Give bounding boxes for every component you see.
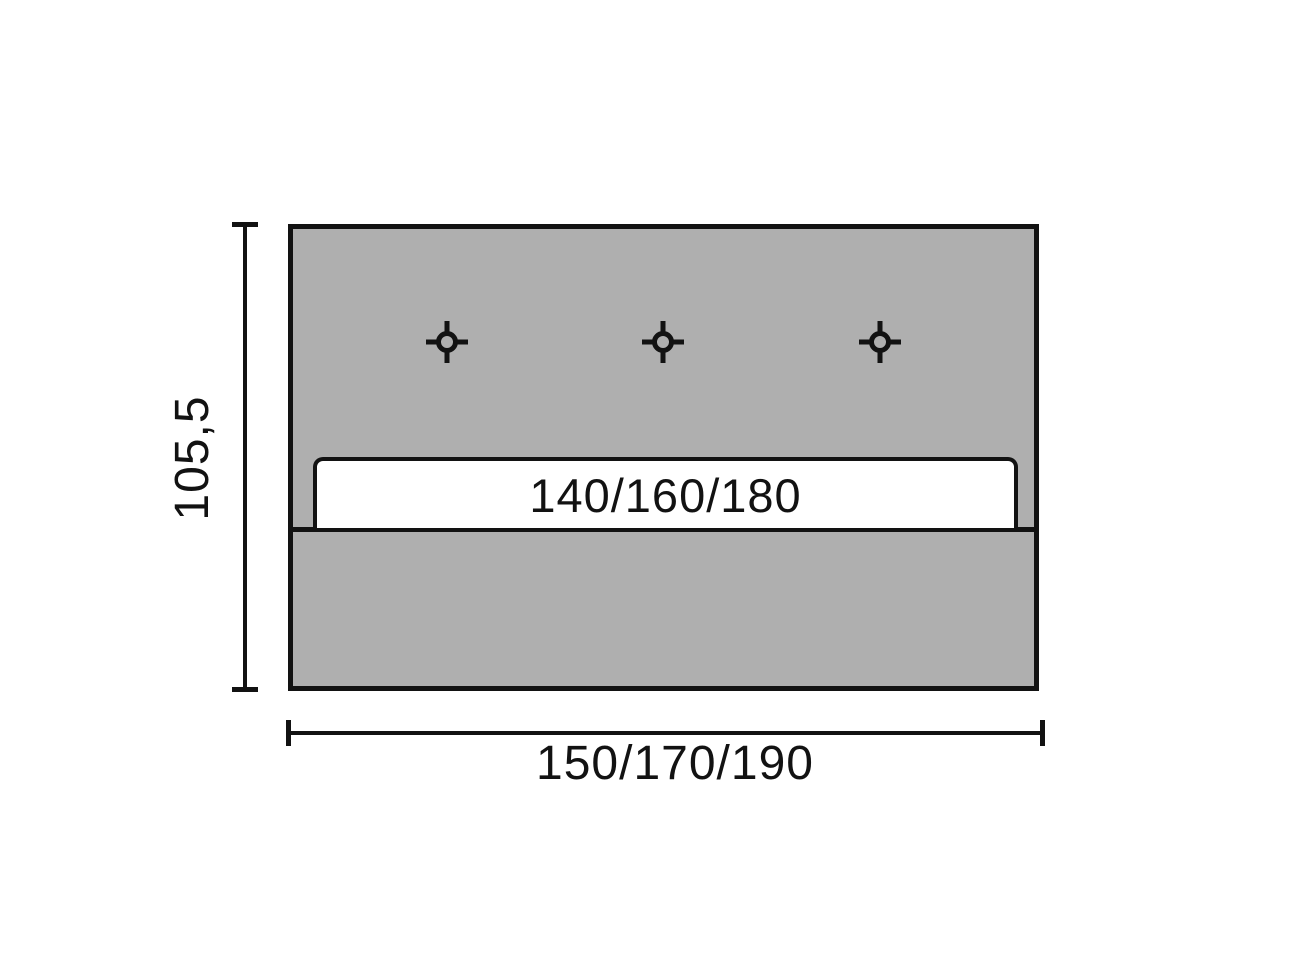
height-dimension-tick-bottom xyxy=(232,687,258,692)
width-dimension-tick-right xyxy=(1040,720,1045,746)
width-dimension-tick-left xyxy=(286,720,291,746)
slot-dimension-label: 140/160/180 xyxy=(529,470,801,519)
height-dimension-tick-top xyxy=(232,222,258,227)
slot-outline: 140/160/180 xyxy=(313,457,1018,532)
crosshair-marker-icon xyxy=(858,320,902,364)
crosshair-marker-icon xyxy=(425,320,469,364)
drawing-canvas: 140/160/180 105,5 xyxy=(0,0,1300,975)
height-dimension-line xyxy=(243,224,247,691)
width-dimension-label: 150/170/190 xyxy=(475,740,875,788)
crosshair-marker-icon xyxy=(641,320,685,364)
width-dimension-line xyxy=(288,731,1043,735)
height-dimension-label: 105,5 xyxy=(167,378,219,538)
